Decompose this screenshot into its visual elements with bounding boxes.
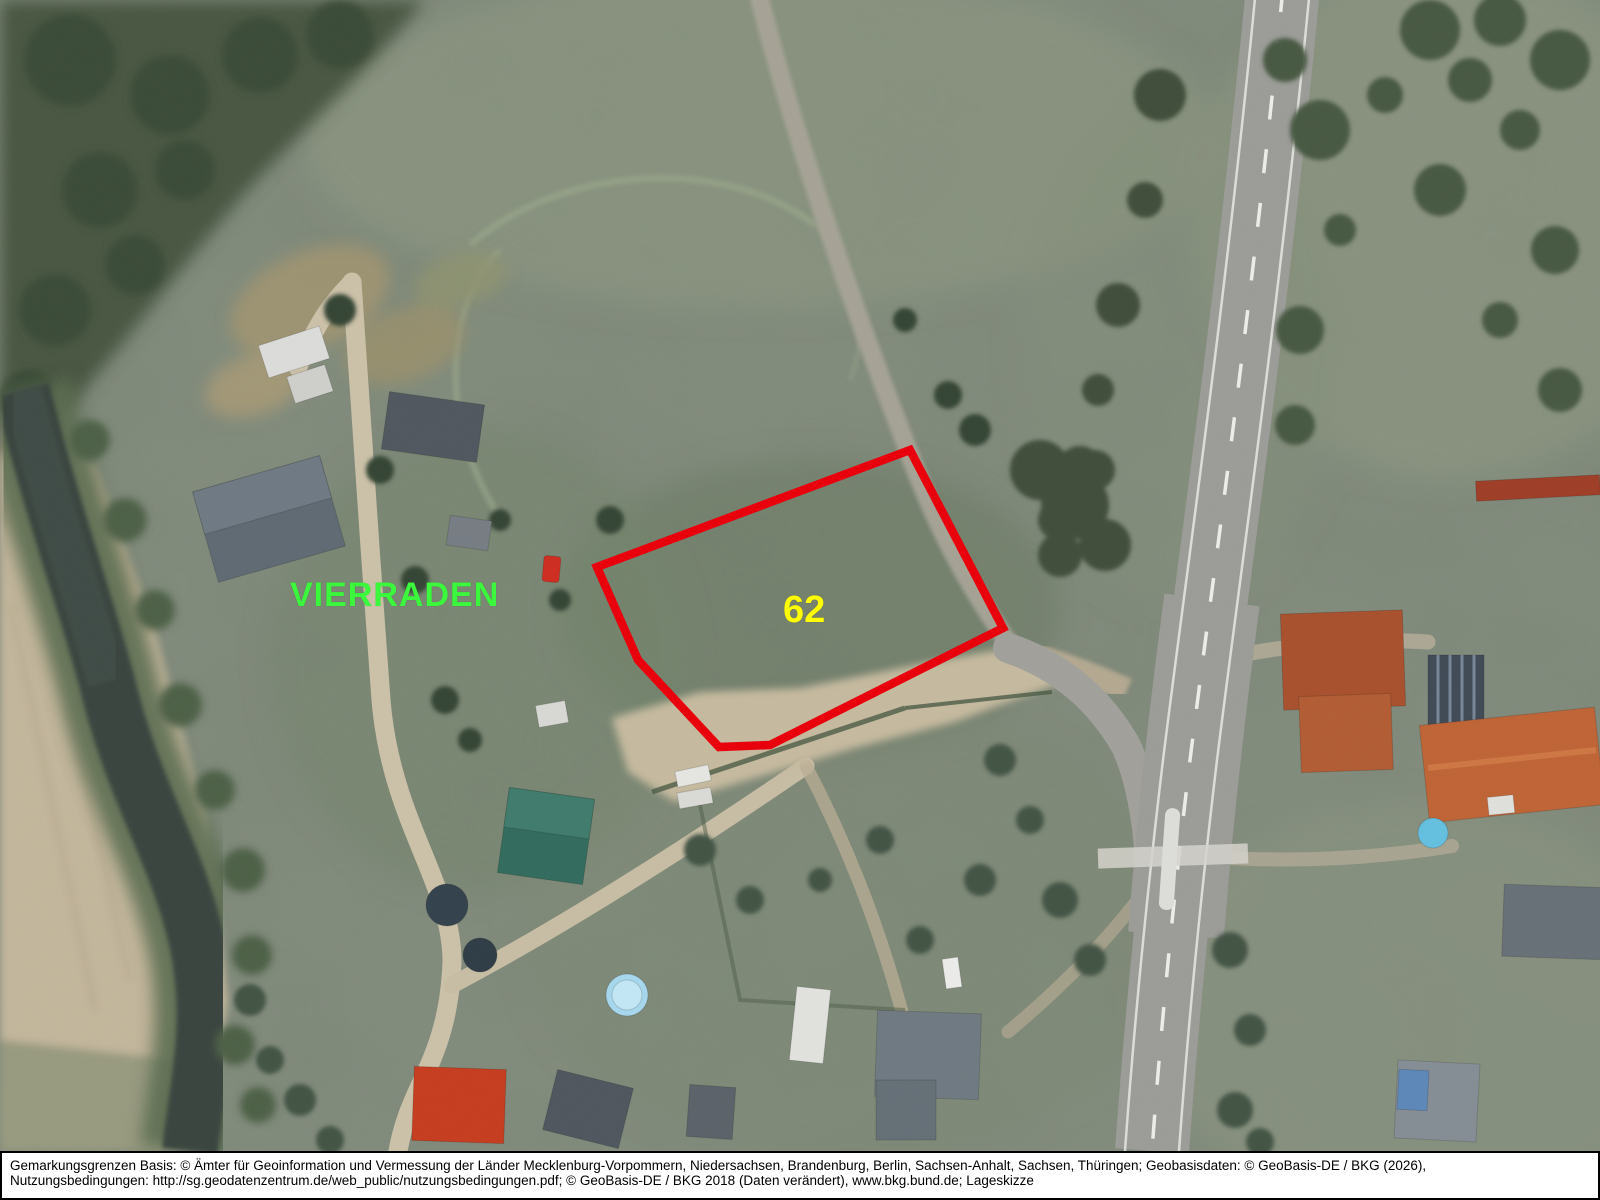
place-label: VIERRADEN — [290, 576, 499, 615]
aerial-photo — [0, 0, 1600, 1151]
aerial-photo-area: VIERRADEN 62 — [0, 0, 1600, 1151]
attribution-footer: Gemarkungsgrenzen Basis: © Ämter für Geo… — [0, 1151, 1600, 1200]
attribution-line-2: Nutzungsbedingungen: http://sg.geodatenz… — [10, 1173, 1590, 1188]
photo-grain — [0, 0, 1600, 1151]
attribution-line-1: Gemarkungsgrenzen Basis: © Ämter für Geo… — [10, 1158, 1590, 1173]
lageskizze-map-view: VIERRADEN 62 Gemarkungsgrenzen Basis: © … — [0, 0, 1600, 1200]
parcel-number-label: 62 — [783, 589, 825, 632]
